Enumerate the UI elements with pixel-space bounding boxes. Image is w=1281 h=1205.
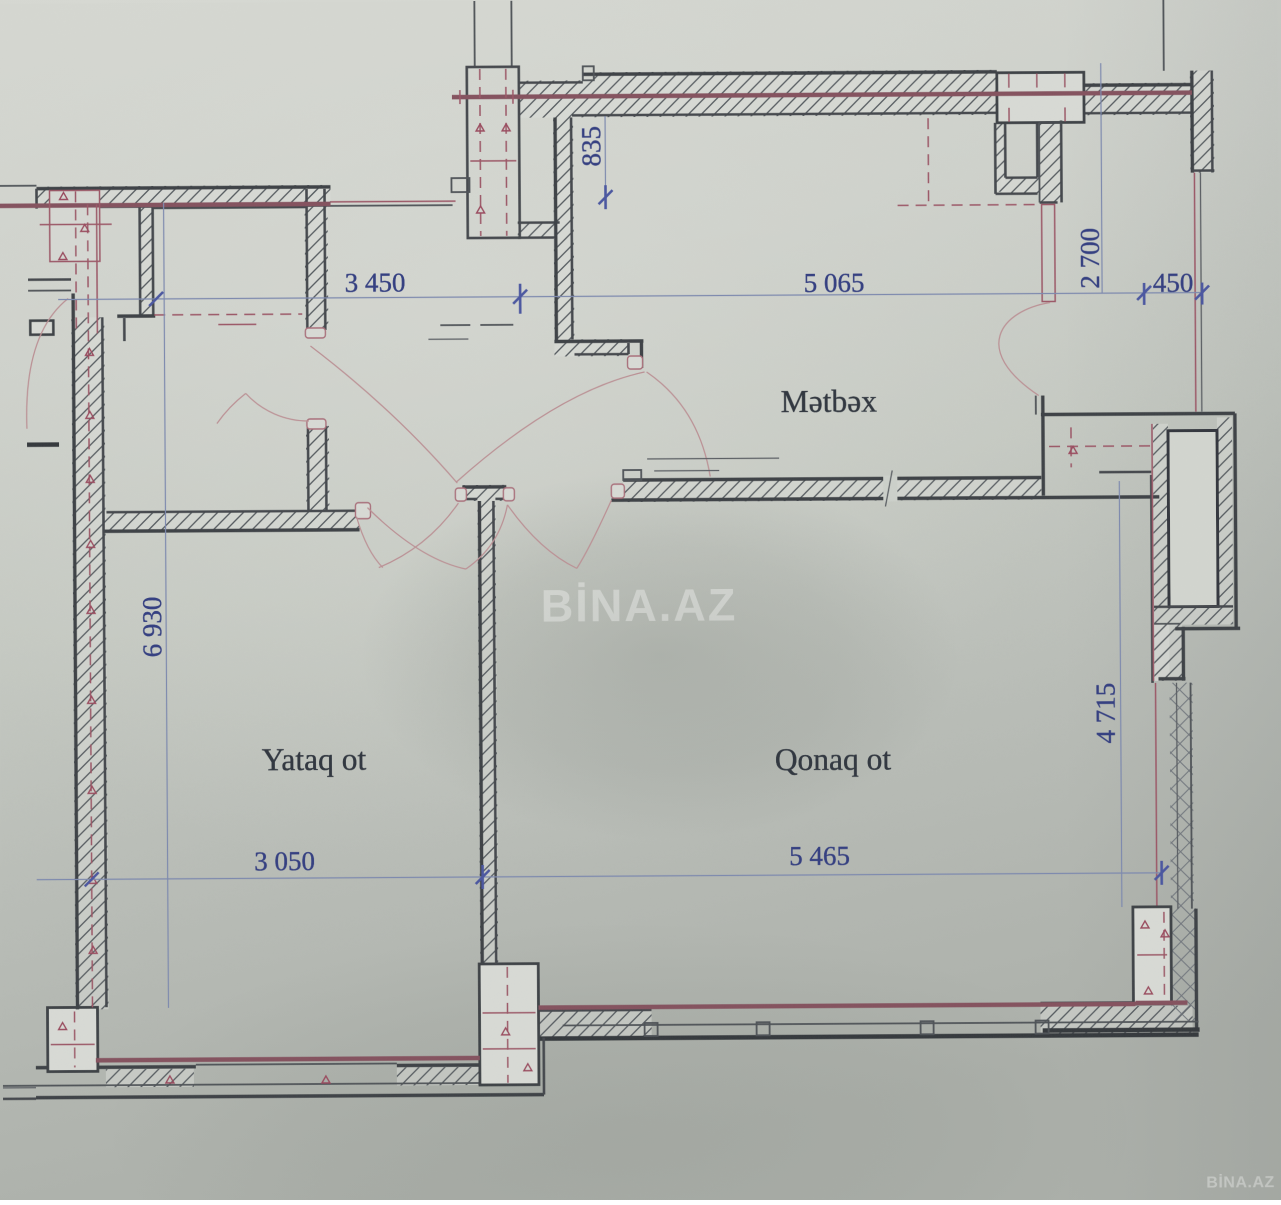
svg-text:BİNA.AZ: BİNA.AZ	[1206, 1173, 1274, 1191]
svg-text:BİNA.AZ: BİNA.AZ	[541, 579, 738, 631]
